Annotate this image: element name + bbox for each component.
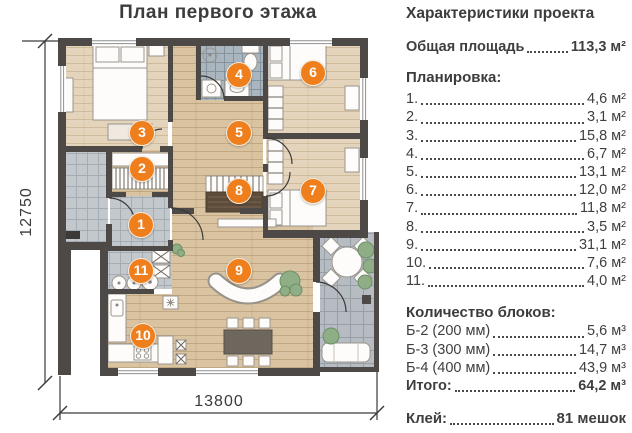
room-number: 9. — [406, 236, 418, 254]
dot-leader — [455, 390, 575, 392]
room-number: 2. — [406, 108, 418, 126]
specs-panel: Характеристики проекта Общая площадь 113… — [406, 0, 626, 428]
floor-plan-drawing: 13800 12750 — [0, 0, 390, 433]
room-marker-10: 10 — [130, 323, 156, 349]
chair — [243, 356, 254, 366]
room-marker-3: 3 — [129, 120, 155, 146]
chair — [227, 356, 238, 366]
room-area: 7,6 м² — [587, 254, 626, 272]
room-row: 11.4,0 м² — [406, 272, 626, 290]
room-number: 4. — [406, 145, 418, 163]
blocks-list: Б-2 (200 мм)5,6 м³ Б-3 (300 мм)14,7 м³ Б… — [406, 322, 626, 395]
block-row: Б-3 (300 мм)14,7 м³ — [406, 341, 626, 359]
planter — [362, 295, 371, 304]
room-number: 11. — [406, 272, 425, 290]
dot-leader — [421, 103, 584, 105]
room-marker-2: 2 — [129, 156, 155, 182]
dot-leader — [493, 372, 576, 374]
room-area: 13,1 м² — [579, 163, 626, 181]
glue-row: Клей: 81 мешок — [406, 410, 626, 428]
room-row: 2.3,1 м² — [406, 108, 626, 126]
dot-leader — [428, 285, 584, 287]
room-marker-9: 9 — [226, 258, 252, 284]
block-value: 14,7 м³ — [579, 341, 626, 359]
room-number: 10. — [406, 254, 426, 272]
glue-label: Клей: — [406, 410, 447, 428]
plant — [323, 328, 339, 344]
dot-leader — [527, 51, 567, 53]
block-label: Б-4 (400 мм) — [406, 359, 490, 377]
page: План первого этажа — [0, 0, 632, 433]
dot-leader — [429, 267, 584, 269]
room-row: 4.6,7 м² — [406, 145, 626, 163]
room-number: 3. — [406, 127, 418, 145]
island — [158, 336, 173, 364]
room-area: 31,1 м² — [579, 236, 626, 254]
room-number: 5. — [406, 163, 418, 181]
dot-leader — [421, 194, 576, 196]
room-area: 6,7 м² — [587, 145, 626, 163]
room-area: 4,0 м² — [587, 272, 626, 290]
floor-plan: План первого этажа — [0, 0, 390, 433]
room-row: 5.13,1 м² — [406, 163, 626, 181]
room-marker-4: 4 — [226, 62, 252, 88]
room-area: 3,5 м² — [587, 218, 626, 236]
block-row: Б-2 (200 мм)5,6 м³ — [406, 322, 626, 340]
room-marker-11: 11 — [128, 258, 154, 284]
dot-leader — [421, 249, 576, 251]
room-row: 1.4,6 м² — [406, 90, 626, 108]
chair — [243, 318, 254, 328]
room-list: 1.4,6 м² 2.3,1 м² 3.15,8 м² 4.6,7 м² 5.1… — [406, 90, 626, 290]
dot-leader — [421, 231, 584, 233]
dot-leader — [421, 122, 584, 124]
block-row: Б-4 (400 мм)43,9 м³ — [406, 359, 626, 377]
room-number: 6. — [406, 181, 418, 199]
block-value: 5,6 м³ — [587, 322, 626, 340]
room-marker-7: 7 — [300, 178, 326, 204]
blocks-section-title: Количество блоков: — [406, 304, 626, 322]
dot-leader — [421, 213, 577, 215]
chair — [227, 318, 238, 328]
room-number: 7. — [406, 199, 418, 217]
chair — [259, 318, 270, 328]
total-area-label: Общая площадь — [406, 38, 524, 56]
room-area: 11,8 м² — [580, 199, 626, 217]
room-row: 9.31,1 м² — [406, 236, 626, 254]
dot-leader — [421, 140, 576, 142]
blocks-total-value: 64,2 м³ — [578, 377, 626, 395]
washing-machine — [202, 80, 221, 97]
desk — [345, 148, 359, 172]
dot-leader — [493, 354, 576, 356]
pillow — [270, 46, 282, 61]
room-area: 4,6 м² — [587, 90, 626, 108]
dot-leader — [421, 176, 576, 178]
room-marker-5: 5 — [226, 120, 252, 146]
room-row: 3.15,8 м² — [406, 127, 626, 145]
dot-leader — [493, 336, 584, 338]
room-area: 12,0 м² — [579, 181, 626, 199]
dot-leader — [450, 423, 553, 425]
door-mat — [65, 231, 80, 239]
dimension-height-label: 12750 — [18, 187, 35, 237]
specs-title: Характеристики проекта — [406, 5, 626, 23]
room-number: 8. — [406, 218, 418, 236]
room-area: 3,1 м² — [587, 108, 626, 126]
room-marker-6: 6 — [300, 60, 326, 86]
total-area-row: Общая площадь 113,3 м² — [406, 38, 626, 56]
dot-leader — [421, 158, 584, 160]
pillow — [270, 63, 282, 78]
glue-value: 81 мешок — [557, 410, 626, 428]
room-row: 8.3,5 м² — [406, 218, 626, 236]
chair — [259, 356, 270, 366]
desk — [345, 86, 359, 110]
layout-section-title: Планировка: — [406, 69, 626, 87]
room-row: 10.7,6 м² — [406, 254, 626, 272]
total-area-value: 113,3 м² — [571, 38, 626, 56]
dining-table — [224, 330, 272, 354]
round-table — [332, 247, 362, 277]
blocks-total-row: Итого:64,2 м³ — [406, 377, 626, 395]
dimension-width-label: 13800 — [194, 393, 244, 410]
room-marker-1: 1 — [128, 212, 154, 238]
pillow — [96, 47, 119, 62]
room-area: 15,8 м² — [579, 127, 626, 145]
block-label: Б-2 (200 мм) — [406, 322, 490, 340]
block-label: Б-3 (300 мм) — [406, 341, 490, 359]
room-row: 7.11,8 м² — [406, 199, 626, 217]
pillow — [121, 47, 144, 62]
room-number: 1. — [406, 90, 418, 108]
block-value: 43,9 м³ — [579, 359, 626, 377]
room-marker-8: 8 — [226, 178, 252, 204]
lounge-sofa — [322, 343, 370, 362]
room-row: 6.12,0 м² — [406, 181, 626, 199]
blocks-total-label: Итого: — [406, 377, 452, 395]
